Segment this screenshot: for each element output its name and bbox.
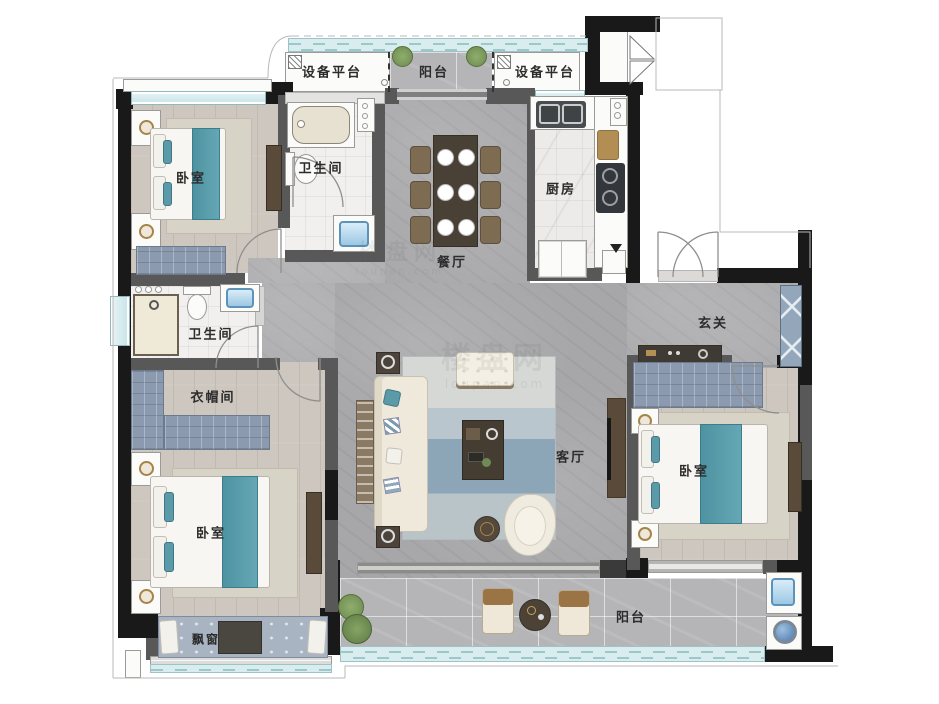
shower-icon (149, 300, 159, 310)
toilet-bowl (187, 294, 207, 320)
window-bedroom-tl (131, 91, 266, 105)
room-label-balcony-top: 阳台 (419, 62, 449, 81)
nook-door-leaf-1 (630, 36, 654, 59)
sofa-pillow (383, 477, 401, 495)
balcony-chair-cushion (483, 589, 513, 605)
slider-balcony-top (397, 89, 487, 100)
pillow-teal (164, 492, 174, 522)
room-label-cloakroom: 衣帽间 (190, 387, 235, 406)
wall-kitchen-right (626, 89, 640, 283)
plant-top-2-icon (466, 46, 487, 67)
side-table-decor-icon (480, 522, 494, 536)
shelf-knob-icon (362, 103, 368, 109)
lamp-icon (139, 224, 154, 239)
wall-foyer-top (717, 268, 812, 283)
plate-icon (458, 184, 475, 201)
sofa-pillow (383, 389, 402, 408)
pillow-teal (651, 482, 660, 509)
bathtub-drain-icon (297, 120, 305, 128)
shelf-knob-icon (362, 123, 368, 129)
window-bedroomr-balcony (648, 560, 763, 573)
balcony-table (519, 599, 551, 631)
hook-icon (135, 286, 142, 293)
plate-icon (458, 219, 475, 236)
room-label-bath-left: 卫生间 (188, 324, 233, 343)
equip-right-drain-icon (503, 79, 510, 86)
bay-tray (218, 621, 262, 654)
floorplan: 设备平台 阳台 设备平台 卧室 卫生间 厨房 餐厅 玄关 卫生间 衣帽间 客厅 … (0, 0, 939, 704)
tv-console-right (788, 442, 802, 512)
room-label-kitchen: 厨房 (546, 179, 576, 198)
wardrobe-left (131, 370, 164, 450)
equip-left-hatch-icon (288, 55, 302, 69)
lamp-icon (139, 461, 154, 476)
shelf-knob-icon (614, 102, 621, 109)
equip-right-hatch-icon (497, 55, 511, 69)
room-label-living: 客厅 (556, 447, 586, 466)
plant-top-1-icon (392, 46, 413, 67)
table-decor-icon (466, 428, 480, 440)
dining-chair (480, 146, 501, 174)
console-decor-icon (646, 350, 656, 356)
speaker-icon (381, 355, 395, 369)
rail-balcony-bottom (340, 646, 765, 662)
bench-living (456, 352, 514, 386)
washer-drum-icon (773, 620, 797, 644)
console-decor-icon (676, 351, 680, 355)
dresser-bedroom-tl (266, 145, 282, 211)
plate-icon (458, 149, 475, 166)
shelf-knob-icon (614, 112, 621, 119)
room-label-equip-left: 设备平台 (302, 62, 362, 81)
sofa-pillow (385, 447, 403, 465)
table-plant-icon (482, 458, 491, 467)
dining-chair (410, 216, 431, 244)
room-label-foyer: 玄关 (698, 313, 728, 332)
plate-icon (437, 184, 454, 201)
bed-runner-teal (222, 476, 258, 588)
bay-pillow (307, 619, 327, 654)
room-label-bedroom-bl: 卧室 (196, 523, 226, 542)
pillow-teal (163, 182, 172, 206)
fridge-door-line (561, 241, 562, 277)
room-label-bay-window: 飘窗 (192, 631, 220, 648)
burner-icon (602, 168, 618, 184)
pillow-teal (163, 140, 172, 164)
fridge (538, 240, 587, 278)
cutting-board (597, 130, 619, 160)
speaker-icon (381, 529, 395, 543)
pillow-teal (164, 542, 174, 572)
laundry-sink (771, 578, 795, 606)
window-bathroom-left (110, 296, 130, 346)
wardrobe-bottom (164, 415, 270, 450)
wall-nook-left (585, 16, 600, 90)
equip-left-drain-icon (381, 79, 388, 86)
sink-basin (339, 221, 369, 247)
sink-basin (226, 288, 254, 308)
divider-balcony-left (388, 52, 390, 92)
hook-icon (145, 286, 152, 293)
room-label-equip-right: 设备平台 (515, 62, 575, 81)
wall-nook-bottom (585, 82, 643, 95)
slider-living-balcony (357, 562, 600, 574)
room-label-bath-top: 卫生间 (298, 158, 343, 177)
wall-cloak-living-black (325, 470, 338, 520)
console-decor-icon (698, 349, 708, 359)
tv-icon (607, 418, 611, 480)
sofa-pillow (383, 417, 401, 435)
outline-notch (125, 650, 141, 678)
dining-chair (410, 181, 431, 209)
console-decor-icon (668, 351, 672, 355)
dining-chair (480, 181, 501, 209)
wardrobe-bedroom-right (633, 362, 763, 408)
room-label-balcony-bottom: 阳台 (616, 607, 646, 626)
lamp-icon (638, 527, 652, 541)
dining-chair (480, 216, 501, 244)
bay-pillow (159, 619, 179, 654)
kitchen-appliance (602, 250, 626, 274)
plate-icon (437, 149, 454, 166)
tv-console-bl (306, 492, 322, 574)
bench-bedroom-tl (136, 246, 226, 275)
burner-icon (602, 190, 618, 206)
entry-door-mat (658, 270, 718, 282)
divider-balcony-right (492, 52, 494, 92)
hook-icon (155, 286, 162, 293)
armchair-cushion (514, 506, 546, 546)
balcony-chair-cushion (559, 591, 589, 607)
lamp-icon (139, 589, 154, 604)
dining-chair (410, 146, 431, 174)
wall-slider-right (600, 560, 628, 578)
plant-balcony-icon (342, 614, 372, 644)
shelf-knob-icon (362, 113, 368, 119)
rail-bay (150, 664, 332, 673)
wall-cloak-top (131, 358, 280, 370)
shoe-cabinet (780, 285, 802, 367)
plate-icon (437, 219, 454, 236)
sink-basin-right (562, 104, 583, 124)
pillow-teal (651, 436, 660, 463)
room-label-bedroom-tl: 卧室 (176, 168, 206, 187)
nook-door-leaf-2 (630, 61, 654, 84)
entry-nook (598, 30, 628, 85)
window-band-top (288, 38, 588, 52)
room-label-dining: 餐厅 (437, 252, 467, 271)
balcony-table-decor-icon (538, 614, 544, 620)
balcony-table-decor-icon (527, 606, 536, 615)
table-decor-icon (486, 428, 498, 440)
sink-basin-left (539, 104, 560, 124)
sofa-console (356, 400, 374, 504)
room-label-bedroom-right: 卧室 (679, 461, 709, 480)
